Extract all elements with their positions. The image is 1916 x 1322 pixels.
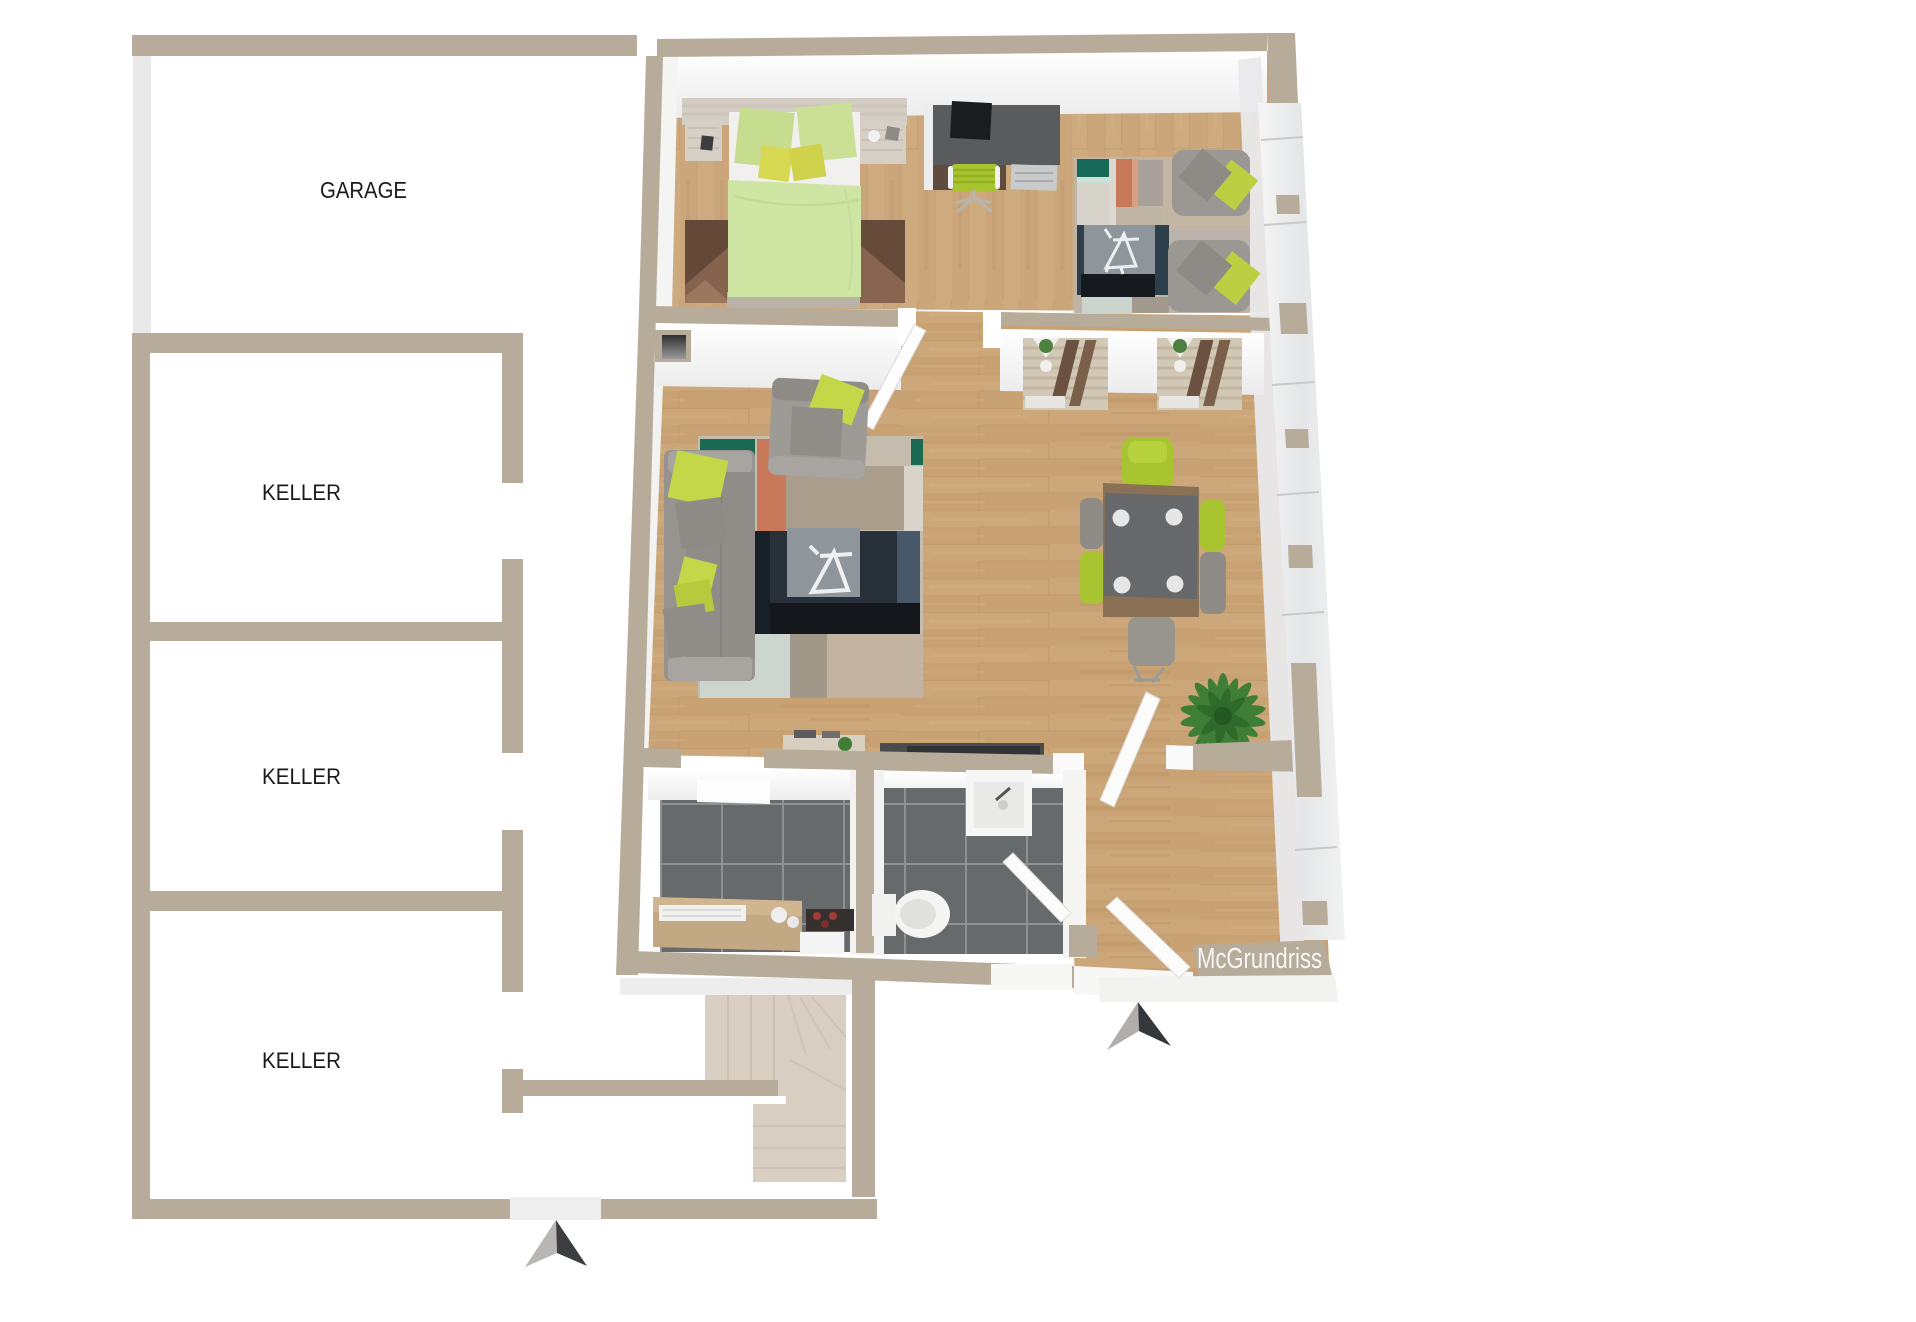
svg-text:KELLER: KELLER (262, 1048, 341, 1073)
svg-text:McGrundriss: McGrundriss (1197, 943, 1322, 975)
svg-text:KELLER: KELLER (262, 764, 341, 789)
svg-text:GARAGE: GARAGE (320, 177, 407, 203)
svg-text:KELLER: KELLER (262, 480, 341, 505)
